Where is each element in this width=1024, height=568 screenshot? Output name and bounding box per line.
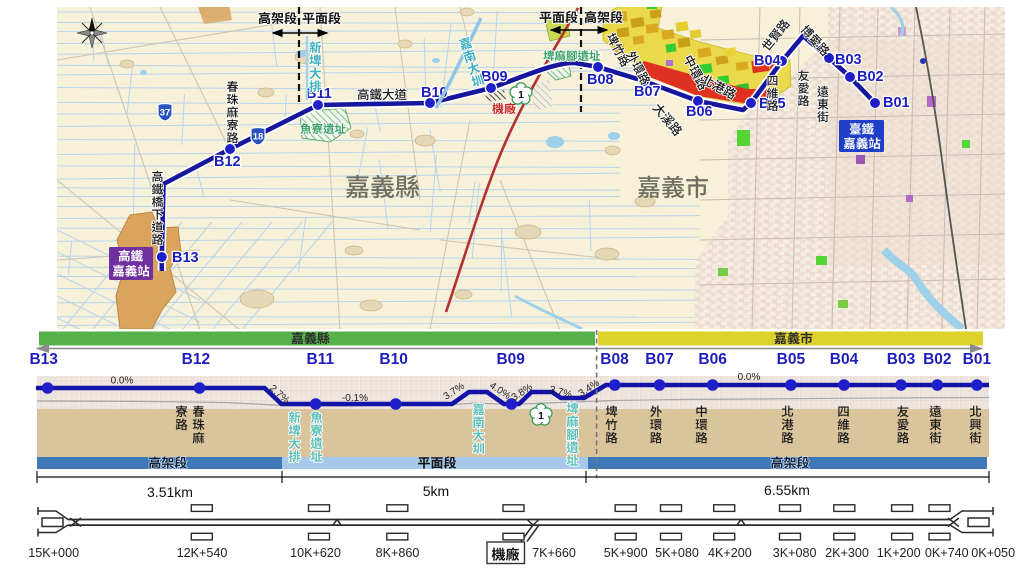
svg-text:10K+620: 10K+620 (290, 546, 341, 560)
svg-text:B08: B08 (587, 72, 614, 88)
svg-text:B02: B02 (923, 351, 951, 368)
svg-text:5K+900: 5K+900 (604, 546, 648, 560)
svg-text:B03: B03 (887, 351, 916, 368)
svg-text:3K+080: 3K+080 (773, 546, 817, 560)
svg-text:7K+660: 7K+660 (532, 546, 576, 560)
svg-text:B04: B04 (830, 351, 859, 368)
svg-text:B07: B07 (634, 84, 661, 100)
svg-text:B01: B01 (883, 95, 910, 111)
svg-text:B11: B11 (307, 351, 335, 368)
svg-text:15K+000: 15K+000 (28, 546, 79, 560)
svg-text:B13: B13 (29, 351, 58, 368)
svg-text:B08: B08 (600, 351, 629, 368)
svg-text:4K+200: 4K+200 (708, 546, 752, 560)
svg-text:1: 1 (538, 411, 544, 422)
svg-text:B01: B01 (963, 351, 992, 368)
svg-text:B09: B09 (481, 69, 508, 85)
svg-text:1: 1 (518, 90, 524, 101)
svg-text:B06: B06 (686, 104, 713, 120)
svg-text:3.51km: 3.51km (147, 484, 193, 500)
svg-text:5km: 5km (423, 483, 449, 499)
svg-text:B09: B09 (496, 351, 525, 368)
svg-text:0.0%: 0.0% (111, 376, 134, 387)
svg-text:-0.1%: -0.1% (342, 393, 368, 404)
svg-text:B05: B05 (777, 351, 806, 368)
svg-text:0K+740: 0K+740 (925, 546, 969, 560)
svg-text:8K+860: 8K+860 (376, 546, 420, 560)
svg-text:B02: B02 (857, 69, 884, 85)
svg-text:12K+540: 12K+540 (177, 546, 228, 560)
svg-text:1K+200: 1K+200 (877, 546, 921, 560)
svg-text:B07: B07 (645, 351, 673, 368)
svg-text:6.55km: 6.55km (764, 482, 810, 498)
svg-text:B03: B03 (835, 52, 862, 68)
svg-text:B04: B04 (754, 53, 781, 69)
svg-text:0K+050: 0K+050 (971, 546, 1015, 560)
svg-text:37: 37 (160, 108, 171, 119)
svg-text:18: 18 (253, 132, 264, 143)
svg-text:B06: B06 (698, 351, 727, 368)
svg-text:5K+080: 5K+080 (655, 546, 699, 560)
svg-text:2K+300: 2K+300 (825, 546, 869, 560)
svg-text:B12: B12 (214, 154, 241, 170)
svg-text:B10: B10 (379, 351, 407, 368)
svg-text:B13: B13 (172, 250, 199, 266)
svg-text:B12: B12 (182, 351, 210, 368)
svg-text:0.0%: 0.0% (738, 372, 761, 383)
